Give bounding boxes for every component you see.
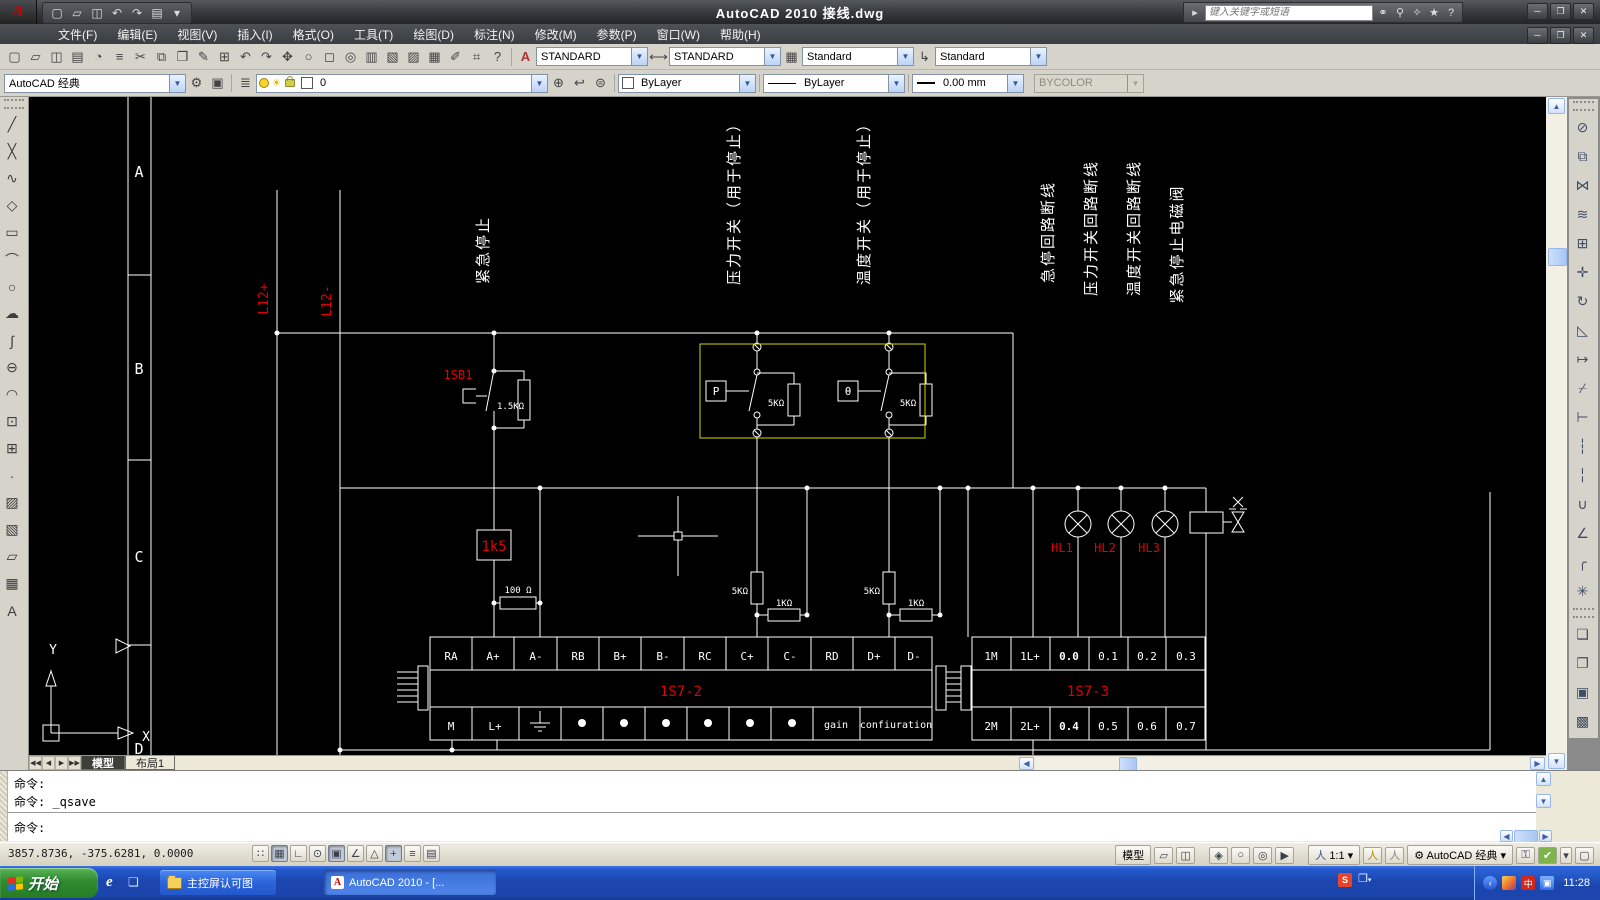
quick-view-drawings-icon[interactable]: ◫ <box>1176 847 1195 864</box>
menu-item[interactable]: 标注(N) <box>464 24 525 45</box>
multileader-style-combo[interactable]: Standard▼ <box>935 47 1047 66</box>
insert-block-icon[interactable]: ⊡ <box>0 408 24 435</box>
value-5k: 5KΩ <box>864 587 881 597</box>
pressure-symbol: P <box>713 385 720 398</box>
menu-item[interactable]: 修改(M) <box>525 24 587 45</box>
array-icon[interactable]: ⊞ <box>1569 229 1596 258</box>
designcenter-icon[interactable]: ▧ <box>382 46 403 67</box>
infocenter: ▸ ⚭ ⚲ ✧ ★ ? <box>1183 2 1463 23</box>
label-1s7-3: 1S7-3 <box>1067 684 1109 700</box>
terminal-cell: RB <box>571 650 585 663</box>
stretch-icon[interactable]: ↦ <box>1569 345 1596 374</box>
extend-icon[interactable]: ⊢ <box>1569 403 1596 432</box>
steering-wheel-icon[interactable]: ◎ <box>1253 847 1272 864</box>
tray-network-icon[interactable]: ▣ <box>1540 876 1554 890</box>
ie-quicklaunch-icon[interactable]: e <box>106 874 113 891</box>
label-temp-line: 温度开关回路断线 <box>1125 160 1143 296</box>
new-icon[interactable]: ▢ <box>4 46 25 67</box>
revcloud-icon[interactable]: ☁ <box>0 300 24 327</box>
zoom-window-icon[interactable]: ◻ <box>319 46 340 67</box>
construction-line-icon[interactable]: ╳ <box>0 138 24 165</box>
value-1k: 1KΩ <box>908 599 925 609</box>
send-back-icon[interactable]: ❐ <box>1569 649 1596 678</box>
drawing-canvas[interactable]: 紧急停止 压力开关（用于停止） 温度开关（用于停止） 急停回路断线 压力开关回路… <box>29 97 1546 755</box>
grid-toggle[interactable]: ▦ <box>271 845 288 862</box>
command-line: 命令: <box>14 775 45 792</box>
scroll-left-icon[interactable]: ◀ <box>1500 830 1513 842</box>
send-under-icon[interactable]: ▩ <box>1569 707 1596 736</box>
menu-item[interactable]: 工具(T) <box>344 24 403 45</box>
help-icon[interactable]: ? <box>487 46 508 67</box>
tab-next-icon[interactable]: ▶ <box>55 756 68 770</box>
terminal-cell: D- <box>907 650 920 663</box>
table-icon[interactable]: ▦ <box>0 570 24 597</box>
title-bar: A ▢▱◫↶↷▤▾ AutoCAD 2010 接线.dwg ▸ ⚭ ⚲ ✧ ★ … <box>0 0 1600 24</box>
standard-toolbar: ▢▱◫▤◔≡✂⧉❐✎⊞↶↷✥○◻◎▥▧▨▦✐⌗? A STANDARD▼ ⟷ S… <box>0 44 1600 70</box>
favorites-icon[interactable]: ★ <box>1427 6 1441 19</box>
chevron-down-icon[interactable]: ▼ <box>764 48 780 65</box>
value-5k: 5KΩ <box>768 399 785 409</box>
label-1k5: 1k5 <box>481 539 506 555</box>
axis-x-label: X <box>142 730 150 745</box>
move-icon[interactable]: ✛ <box>1569 258 1596 287</box>
line-icon[interactable]: ╱ <box>0 111 24 138</box>
schematic: 紧急停止 压力开关（用于停止） 温度开关（用于停止） 急停回路断线 压力开关回路… <box>29 97 1546 755</box>
lineweight-sample-icon <box>917 82 935 84</box>
open-icon[interactable]: ▱ <box>25 46 46 67</box>
sogou-icon[interactable]: S <box>1338 873 1352 887</box>
command-line: 命令: _qsave <box>14 793 96 810</box>
scroll-down-icon[interactable]: ▼ <box>1548 753 1565 769</box>
status-tray-icon[interactable]: ✔ <box>1538 847 1557 864</box>
showmotion-icon[interactable]: ▶ <box>1275 847 1294 864</box>
value-5k: 5KΩ <box>732 587 749 597</box>
zone-a: A <box>134 163 143 181</box>
terminal-cell: 0.5 <box>1098 720 1118 733</box>
save-icon[interactable]: ◫ <box>46 46 67 67</box>
color-swatch-icon <box>622 77 634 89</box>
copy-clip-icon[interactable]: ⧉ <box>151 46 172 67</box>
terminal-cell: 2L+ <box>1020 720 1040 733</box>
communication-center-icon[interactable]: ✧ <box>1410 6 1424 19</box>
workspace-switch-button[interactable]: ⚙ AutoCAD 经典 ▾ <box>1407 845 1513 865</box>
bring-above-icon[interactable]: ▣ <box>1569 678 1596 707</box>
status-toggles: ∷ ▦ ∟ ⊙ ▣ ∠ △ + ≡ ▤ <box>252 845 440 862</box>
restore-button[interactable]: ❐ <box>1550 3 1571 20</box>
bring-front-icon[interactable]: ❏ <box>1569 620 1596 649</box>
menu-item[interactable]: 格式(O) <box>283 24 344 45</box>
dyn-toggle[interactable]: + <box>385 845 402 862</box>
autocad-icon: A <box>331 876 344 889</box>
terminal-cell: C- <box>783 650 796 663</box>
linetype-sample-icon <box>768 83 796 84</box>
redo-icon[interactable]: ↷ <box>256 46 277 67</box>
toolbar-grip[interactable] <box>4 99 24 109</box>
language-bar-icon[interactable]: ❐▾ <box>1358 872 1371 885</box>
infocenter-expand-icon[interactable]: ▸ <box>1188 6 1202 19</box>
menu-item[interactable]: 文件(F) <box>48 24 107 45</box>
pan-icon[interactable]: ◈ <box>1209 847 1228 864</box>
quick-view-layouts-icon[interactable]: ▱ <box>1154 847 1173 864</box>
otrack-toggle[interactable]: ∠ <box>347 845 364 862</box>
label-temp-switch: 温度开关（用于停止） <box>855 115 873 285</box>
terminal-cell: 0.3 <box>1176 650 1196 663</box>
menu-item[interactable]: 插入(I) <box>227 24 282 45</box>
fillet-icon[interactable]: ╭ <box>1569 548 1596 577</box>
annotation-scale-button[interactable]: 人 1:1 ▾ <box>1308 845 1360 865</box>
ellipse-arc-icon[interactable]: ◠ <box>0 381 24 408</box>
autoscale-icon[interactable]: 人 <box>1385 847 1404 864</box>
tab-first-icon[interactable]: ◀◀ <box>29 756 42 770</box>
layer-color-icon <box>301 77 313 89</box>
properties-toolbar: AutoCAD 经典▼ ⚙ ▣ ≣ ☀ 0 ▼ ⊕ ↩ ⊜ ByLayer ▼ … <box>0 70 1600 97</box>
chevron-down-icon[interactable]: ▼ <box>631 48 647 65</box>
minimize-button[interactable]: ─ <box>1527 3 1548 20</box>
model-space-button[interactable]: 模型 <box>1115 845 1151 865</box>
annotation-visibility-icon[interactable]: 人 <box>1363 847 1382 864</box>
label-emergency-stop: 紧急停止 <box>474 216 492 284</box>
task-button-folder[interactable]: 主控屏认可图 <box>160 870 276 895</box>
chevron-down-icon[interactable]: ▼ <box>897 48 913 65</box>
terminal-cell: RC <box>698 650 711 663</box>
rectangle-icon[interactable]: ▭ <box>0 219 24 246</box>
layer-on-icon[interactable] <box>259 78 269 88</box>
doc-restore-button[interactable]: ❐ <box>1550 27 1571 44</box>
start-button[interactable]: 开始 <box>0 868 98 898</box>
clock: 11:28 <box>1563 877 1590 889</box>
menu-item[interactable]: 窗口(W) <box>647 24 710 45</box>
menu-item[interactable]: 视图(V) <box>167 24 227 45</box>
polyline-icon[interactable]: ∿ <box>0 165 24 192</box>
mtext-icon[interactable]: A <box>0 597 24 624</box>
undo-icon[interactable]: ↶ <box>235 46 256 67</box>
paste-icon[interactable]: ❐ <box>172 46 193 67</box>
plot-icon[interactable]: ▤ <box>67 46 88 67</box>
system-tray: ‹ 中 ▣ 11:28 <box>1474 866 1600 900</box>
ducs-toggle[interactable]: △ <box>366 845 383 862</box>
markup-icon[interactable]: ✐ <box>445 46 466 67</box>
label-hl1: HL1 <box>1051 541 1073 555</box>
terminal-cell: RA <box>444 650 458 663</box>
terminal-cell: C+ <box>740 650 754 663</box>
close-button[interactable]: ✕ <box>1573 3 1594 20</box>
chevron-down-icon: ▼ <box>1127 75 1143 92</box>
search-input[interactable] <box>1205 5 1373 21</box>
multileader-style-icon[interactable]: ↳ <box>914 46 935 67</box>
search-icon[interactable]: ⚭ <box>1376 6 1390 19</box>
label-1sb1: 1SB1 <box>444 368 473 382</box>
modify-toolbar: ⊘⧉⋈≋⊞✛↻◺↦⌿⊢┆╎∪∠╭✳ ❏❐▣▩ <box>1569 99 1598 738</box>
dim-style-combo[interactable]: STANDARD▼ <box>669 47 781 66</box>
chevron-down-icon[interactable]: ▼ <box>1007 75 1023 92</box>
junction-dots <box>275 331 1168 753</box>
status-menu-caret-icon[interactable]: ▾ <box>1560 847 1572 864</box>
tab-layout1[interactable]: 布局1 <box>125 756 175 770</box>
layer-lock-icon[interactable] <box>285 79 295 87</box>
layer-states-icon[interactable]: ⊜ <box>590 73 611 94</box>
qp-toggle[interactable]: ▤ <box>423 845 440 862</box>
sheetset-icon[interactable]: ▦ <box>424 46 445 67</box>
hscroll-right-icon[interactable]: ▶ <box>1530 757 1545 770</box>
cut-icon[interactable]: ✂ <box>130 46 151 67</box>
color-combo[interactable]: ByLayer ▼ <box>618 74 756 93</box>
menu-item[interactable]: 参数(P) <box>587 24 647 45</box>
tab-last-icon[interactable]: ▶▶ <box>68 756 81 770</box>
gradient-icon[interactable]: ▧ <box>0 516 24 543</box>
osnap-toggle[interactable]: ▣ <box>328 845 345 862</box>
terminal-cell: A- <box>529 650 542 663</box>
layer-previous-icon[interactable]: ↩ <box>569 73 590 94</box>
break-point-icon[interactable]: ┆ <box>1569 432 1596 461</box>
point-icon[interactable]: ∙ <box>0 462 24 489</box>
value-1.5k: 1.5KΩ <box>497 402 525 412</box>
zoom-realtime-icon[interactable]: ○ <box>298 46 319 67</box>
doc-window-controls: ─ ❐ ✕ <box>1527 27 1594 44</box>
terminal-cell: 1L+ <box>1020 650 1040 663</box>
terminal-cell: B+ <box>613 650 627 663</box>
scroll-right-icon[interactable]: ▶ <box>1539 830 1552 842</box>
clean-screen-icon[interactable]: ▢ <box>1575 847 1594 864</box>
canvas-vscrollbar[interactable]: ▲ ▼ <box>1546 97 1567 770</box>
layer-freeze-icon[interactable]: ☀ <box>272 78 281 89</box>
polygon-icon[interactable]: ◇ <box>0 192 24 219</box>
quickcalc-icon[interactable]: ⌗ <box>466 46 487 67</box>
terminal-cell: confiuration <box>860 720 932 731</box>
chevron-down-icon[interactable]: ▼ <box>531 75 547 92</box>
coordinates-readout: 3857.8736, -375.6281, 0.0000 <box>8 847 193 860</box>
zoom-icon[interactable]: ○ <box>1231 847 1250 864</box>
layer-properties-icon[interactable]: ≣ <box>235 73 256 94</box>
chevron-down-icon[interactable]: ▼ <box>888 75 904 92</box>
zoom-previous-icon[interactable]: ◎ <box>340 46 361 67</box>
snap-toggle[interactable]: ∷ <box>252 845 269 862</box>
table-style-combo[interactable]: Standard▼ <box>802 47 914 66</box>
value-5k: 5KΩ <box>900 399 917 409</box>
break-icon[interactable]: ╎ <box>1569 461 1596 490</box>
doc-minimize-button[interactable]: ─ <box>1527 27 1548 44</box>
linetype-combo[interactable]: ByLayer ▼ <box>763 74 905 93</box>
command-history[interactable]: 命令: 命令: _qsave 命令: <box>8 771 1536 841</box>
table-style-icon[interactable]: ▦ <box>781 46 802 67</box>
theta-symbol: θ <box>845 385 852 398</box>
make-layer-current-icon[interactable]: ⊕ <box>548 73 569 94</box>
plotstyle-combo: BYCOLOR ▼ <box>1034 74 1144 93</box>
hatch-icon[interactable]: ▨ <box>0 489 24 516</box>
lineweight-combo[interactable]: 0.00 mm ▼ <box>912 74 1024 93</box>
ime-icon[interactable]: 中 <box>1521 876 1535 890</box>
terminal-cell: 2M <box>984 720 998 733</box>
match-properties-icon[interactable]: ✎ <box>193 46 214 67</box>
hscroll-left-icon[interactable]: ◀ <box>1019 757 1034 770</box>
command-prompt[interactable]: 命令: <box>14 819 45 836</box>
label-pressure-switch: 压力开关（用于停止） <box>725 115 743 285</box>
scroll-down-icon[interactable]: ▼ <box>1536 794 1551 808</box>
command-window-grip[interactable] <box>0 771 8 841</box>
lwt-toggle[interactable]: ≡ <box>404 845 421 862</box>
make-block-icon[interactable]: ⊞ <box>0 435 24 462</box>
spline-icon[interactable]: ∫ <box>0 327 24 354</box>
value-1k: 1KΩ <box>776 599 793 609</box>
trim-icon[interactable]: ⌿ <box>1569 374 1596 403</box>
command-hscrollbar[interactable]: ◀ ▶ <box>1500 830 1552 842</box>
terminal-cell: 0.2 <box>1137 650 1157 663</box>
vscroll-thumb[interactable] <box>1548 248 1567 266</box>
tray-collapse-icon[interactable]: ‹ <box>1483 876 1497 890</box>
label-hl2: HL2 <box>1094 541 1116 555</box>
command-separator <box>8 812 1536 813</box>
draw-toolbar: ╱╳∿◇▭⌒○☁∫⊖◠⊡⊞∙▨▧▱▦A <box>0 97 29 770</box>
layer-combo[interactable]: ☀ 0 ▼ <box>256 74 548 93</box>
terminal-cell: A+ <box>486 650 500 663</box>
copy-icon[interactable]: ⧉ <box>1569 142 1596 171</box>
block-editor-icon[interactable]: ⊞ <box>214 46 235 67</box>
terminal-cell: 0.4 <box>1059 720 1079 733</box>
erase-icon[interactable]: ⊘ <box>1569 113 1596 142</box>
label-estop-line: 急停回路断线 <box>1039 181 1057 283</box>
chevron-down-icon[interactable]: ▼ <box>1030 48 1046 65</box>
plot-preview-icon[interactable]: ◔ <box>88 46 109 67</box>
scroll-up-icon[interactable]: ▲ <box>1536 772 1551 786</box>
axis-y-label: Y <box>49 643 57 658</box>
terminal-cell: M <box>448 720 455 733</box>
tool-palettes-icon[interactable]: ▨ <box>403 46 424 67</box>
publish-icon[interactable]: ≡ <box>109 46 130 67</box>
tab-model[interactable]: 模型 <box>81 756 125 770</box>
dim-style-icon[interactable]: ⟷ <box>648 46 669 67</box>
chevron-down-icon[interactable]: ▼ <box>169 75 185 92</box>
polar-toggle[interactable]: ⊙ <box>309 845 326 862</box>
label-1s7-2: 1S7-2 <box>660 684 702 700</box>
mirror-icon[interactable]: ⋈ <box>1569 171 1596 200</box>
doc-close-button[interactable]: ✕ <box>1573 27 1594 44</box>
desktop-quicklaunch-icon[interactable]: ❏ <box>128 875 139 889</box>
text-style-icon[interactable]: A <box>515 46 536 67</box>
terminal-cell: 0.6 <box>1137 720 1157 733</box>
label-pressure-line: 压力开关回路断线 <box>1082 160 1100 296</box>
toolbar-lock-icon[interactable]: ⚿ <box>1516 847 1535 864</box>
label-hl3: HL3 <box>1138 541 1160 555</box>
value-100: 100 Ω <box>504 586 532 596</box>
terminal-cell: RD <box>825 650 838 663</box>
terminal-cell: gain <box>824 720 848 731</box>
task-button-autocad[interactable]: A AutoCAD 2010 - [... <box>324 870 496 895</box>
explode-icon[interactable]: ✳ <box>1569 577 1596 606</box>
menu-item[interactable]: 帮助(H) <box>710 24 771 45</box>
rotate-icon[interactable]: ↻ <box>1569 287 1596 316</box>
arc-icon[interactable]: ⌒ <box>0 246 24 273</box>
menu-bar: 文件(F)编辑(E)视图(V)插入(I)格式(O)工具(T)绘图(D)标注(N)… <box>0 24 1600 44</box>
toolbar-grip[interactable] <box>1573 101 1594 111</box>
text-style-combo[interactable]: STANDARD▼ <box>536 47 648 66</box>
terminal-cell: 0.0 <box>1059 650 1079 663</box>
chevron-down-icon[interactable]: ▼ <box>739 75 755 92</box>
join-icon[interactable]: ∪ <box>1569 490 1596 519</box>
ortho-toggle[interactable]: ∟ <box>290 845 307 862</box>
key-icon[interactable]: ⚲ <box>1393 6 1407 19</box>
terminal-cell: 0.1 <box>1098 650 1118 663</box>
workspace-settings-icon[interactable]: ⚙ <box>186 73 207 94</box>
tab-prev-icon[interactable]: ◀ <box>42 756 55 770</box>
terminal-cell: L+ <box>488 720 502 733</box>
layout-tab-bar: ◀◀ ◀ ▶ ▶▶ 模型 布局1 ◀ ▶ <box>29 755 1546 770</box>
scroll-up-icon[interactable]: ▲ <box>1548 98 1565 114</box>
offset-icon[interactable]: ≋ <box>1569 200 1596 229</box>
pan-icon[interactable]: ✥ <box>277 46 298 67</box>
region-icon[interactable]: ▱ <box>0 543 24 570</box>
zone-b: B <box>134 360 143 378</box>
zone-c: C <box>134 548 143 566</box>
ellipse-icon[interactable]: ⊖ <box>0 354 24 381</box>
workspace-save-icon[interactable]: ▣ <box>207 73 228 94</box>
chamfer-icon[interactable]: ∠ <box>1569 519 1596 548</box>
circle-icon[interactable]: ○ <box>0 273 24 300</box>
terminal-cell: 0.7 <box>1176 720 1196 733</box>
app-window-controls: ─ ❐ ✕ <box>1527 3 1594 20</box>
label-l12p: L12+ <box>257 283 272 314</box>
status-right-tools: 模型 ▱ ◫ ◈ ○ ◎ ▶ 人 1:1 ▾ 人 人 ⚙ AutoCAD 经典 … <box>1115 845 1594 865</box>
terminal-cell: B- <box>656 650 669 663</box>
canvas-hscrollbar[interactable] <box>1035 757 1529 770</box>
workspace-combo[interactable]: AutoCAD 经典▼ <box>4 74 186 93</box>
properties-icon[interactable]: ▥ <box>361 46 382 67</box>
windows-logo-icon <box>8 876 23 891</box>
menu-item[interactable]: 绘图(D) <box>403 24 464 45</box>
command-vscrollbar[interactable]: ▲ ▼ <box>1536 772 1552 810</box>
tray-picture-icon[interactable] <box>1502 876 1516 890</box>
terminal-cell: D+ <box>867 650 881 663</box>
label-l12m: L12- <box>320 285 335 316</box>
toolbar-grip[interactable] <box>1573 608 1594 618</box>
terminal-cell: 1M <box>984 650 998 663</box>
help-icon[interactable]: ? <box>1444 7 1458 19</box>
label-valve: 紧急停止电磁阀 <box>1168 184 1186 303</box>
folder-icon <box>167 877 182 889</box>
scale-icon[interactable]: ◺ <box>1569 316 1596 345</box>
menu-item[interactable]: 编辑(E) <box>107 24 167 45</box>
